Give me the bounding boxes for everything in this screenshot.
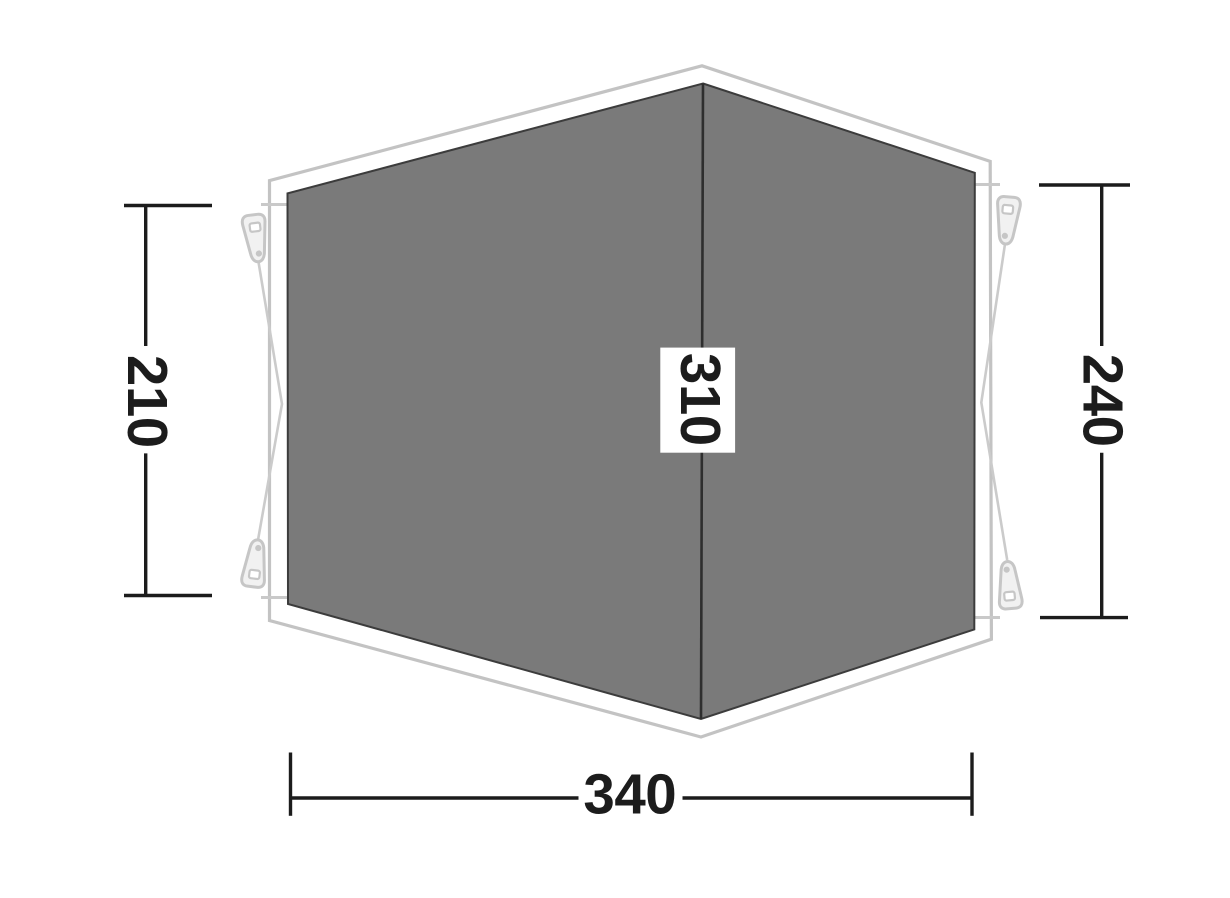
svg-text:310: 310 (669, 353, 732, 446)
svg-text:240: 240 (1072, 354, 1135, 447)
svg-text:210: 210 (116, 355, 179, 448)
svg-text:340: 340 (583, 763, 676, 826)
